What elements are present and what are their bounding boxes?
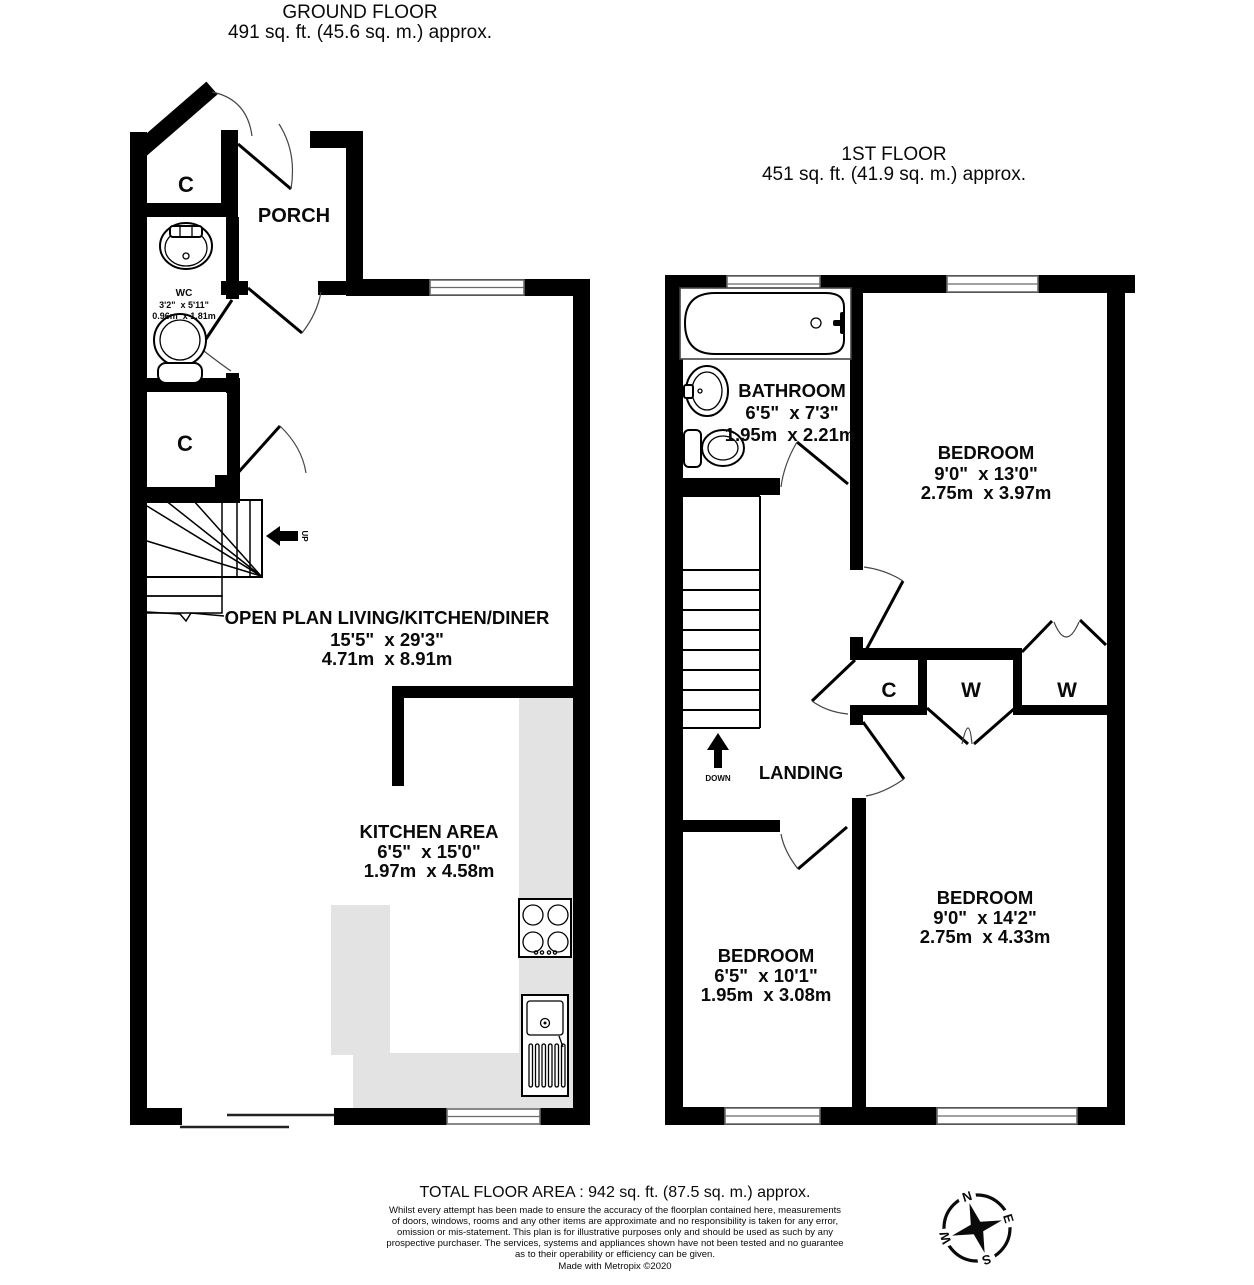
down-label: DOWN	[705, 774, 731, 783]
bedroom-left-dims-imperial: 6'5" x 10'1"	[714, 965, 818, 986]
first-floor-title: 1ST FLOOR	[841, 144, 946, 165]
wc-dims-metric: 0.96m x 1.81m	[152, 311, 216, 321]
up-arrow-icon	[266, 526, 298, 546]
wardrobe-left-label: W	[961, 679, 981, 702]
footer: TOTAL FLOOR AREA : 942 sq. ft. (87.5 sq.…	[386, 1184, 1017, 1272]
bathroom-label: BATHROOM	[738, 380, 846, 401]
bedroom-right-door	[863, 722, 904, 796]
disclaimer-line-4: prospective purchaser. The services, sys…	[386, 1238, 843, 1249]
bathroom-dims-metric: 1.95m x 2.21m	[725, 424, 856, 445]
ground-floor-plan: GROUND FLOOR 491 sq. ft. (45.6 sq. m.) a…	[130, 2, 590, 1127]
wardrobe-left-doors	[927, 708, 1015, 744]
kitchen-dims-imperial: 6'5" x 15'0"	[377, 841, 481, 862]
up-label: UP	[300, 530, 309, 542]
wardrobe-right-label: W	[1057, 679, 1077, 702]
wc-dims-imperial: 3'2" x 5'11"	[159, 300, 209, 310]
compass-star-icon	[952, 1203, 1002, 1253]
porch-inner-door	[248, 288, 321, 333]
wc-basin	[160, 223, 212, 269]
disclaimer-line-3: omission or mis-statement. This plan is …	[397, 1227, 833, 1238]
disclaimer-line-2: of doors, windows, rooms and any other i…	[392, 1216, 838, 1227]
bedroom-left-door	[781, 827, 847, 869]
bedroom-left-label: BEDROOM	[718, 945, 815, 966]
porch-label: PORCH	[258, 205, 330, 227]
bathroom-door	[781, 442, 848, 487]
floorplan-svg: GROUND FLOOR 491 sq. ft. (45.6 sq. m.) a…	[0, 0, 1254, 1280]
cupboard-top-label: C	[178, 172, 194, 197]
floorplan-page: GROUND FLOOR 491 sq. ft. (45.6 sq. m.) a…	[0, 0, 1254, 1280]
living-dims-imperial: 15'5" x 29'3"	[330, 629, 444, 650]
disclaimer-line-5: as to their operability or efficiency ca…	[515, 1249, 715, 1260]
bedroom-top-door	[864, 567, 903, 654]
bedroom-top-dims-metric: 2.75m x 3.97m	[921, 482, 1052, 503]
staircase-down: DOWN	[683, 496, 760, 783]
bedroom-left-dims-metric: 1.95m x 3.08m	[701, 984, 832, 1005]
cupboard-mid-label: C	[177, 431, 193, 456]
total-floor-area: TOTAL FLOOR AREA : 942 sq. ft. (87.5 sq.…	[420, 1184, 811, 1201]
cupboard-first-label: C	[881, 679, 896, 702]
metropix-credit: Made with Metropix ©2020	[558, 1261, 671, 1272]
kitchen-dims-metric: 1.97m x 4.58m	[364, 860, 495, 881]
cupboard-door	[236, 426, 306, 475]
wc-toilet	[154, 314, 206, 383]
first-floor-plan: 1ST FLOOR 451 sq. ft. (41.9 sq. m.) appr…	[665, 144, 1135, 1125]
bedroom-top-label: BEDROOM	[938, 442, 1035, 463]
bedroom-top-dims-imperial: 9'0" x 13'0"	[934, 463, 1038, 484]
bedroom-right-dims-imperial: 9'0" x 14'2"	[933, 907, 1037, 928]
staircase-up: UP	[146, 500, 309, 621]
wardrobe-right-doors	[1022, 620, 1106, 652]
ground-floor-title: GROUND FLOOR	[282, 2, 437, 23]
ground-floor-area: 491 sq. ft. (45.6 sq. m.) approx.	[228, 22, 492, 43]
bedroom-right-label: BEDROOM	[937, 887, 1034, 908]
cupboard-first-door	[812, 660, 855, 714]
hob	[519, 899, 571, 957]
kitchen-label: KITCHEN AREA	[359, 821, 498, 842]
disclaimer-line-1: Whilst every attempt has been made to en…	[389, 1205, 841, 1216]
living-dims-metric: 4.71m x 8.91m	[322, 648, 453, 669]
landing-label: LANDING	[759, 762, 843, 783]
sliding-door	[180, 1115, 334, 1127]
kitchen-sink	[522, 995, 568, 1096]
bedroom-right-dims-metric: 2.75m x 4.33m	[920, 926, 1051, 947]
living-label: OPEN PLAN LIVING/KITCHEN/DINER	[225, 607, 550, 628]
first-floor-area: 451 sq. ft. (41.9 sq. m.) approx.	[762, 164, 1026, 185]
wc-label: WC	[176, 288, 193, 299]
compass-rose: N E S W	[936, 1188, 1017, 1269]
bathtub	[680, 288, 851, 359]
bathroom-dims-imperial: 6'5" x 7'3"	[745, 402, 838, 423]
down-arrow-icon	[707, 733, 729, 768]
bathroom-basin	[684, 366, 728, 416]
